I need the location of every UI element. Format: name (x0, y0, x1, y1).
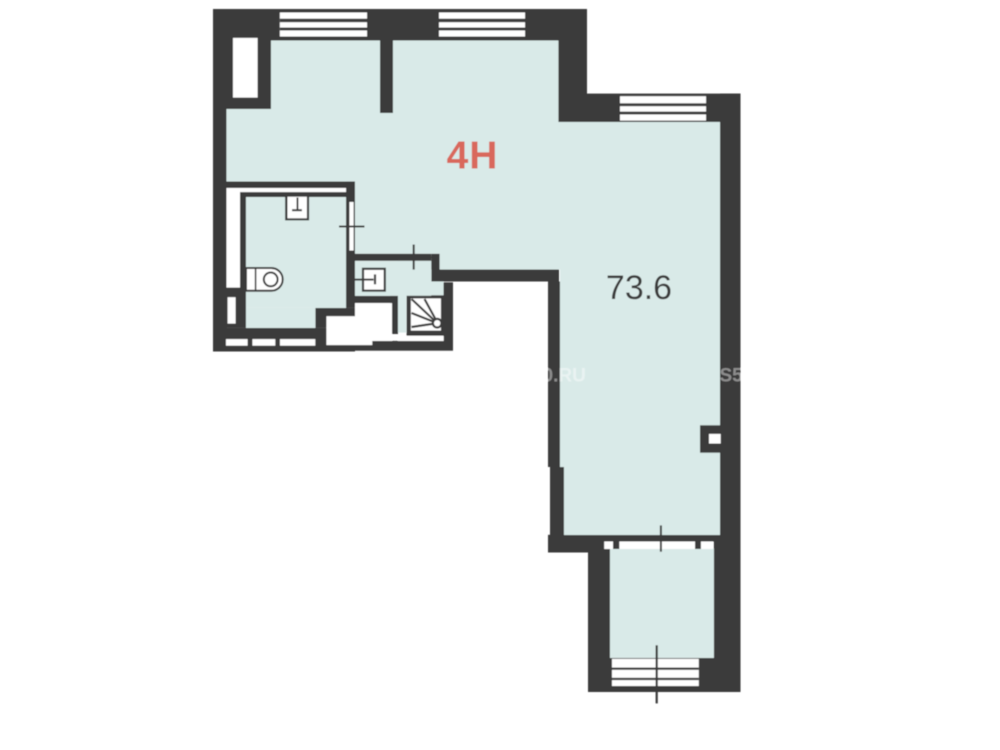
svg-text:0.RU: 0.RU (543, 366, 586, 387)
svg-text:73.6: 73.6 (606, 269, 672, 307)
svg-text:4H: 4H (447, 134, 499, 177)
svg-text:S5: S5 (720, 366, 744, 387)
